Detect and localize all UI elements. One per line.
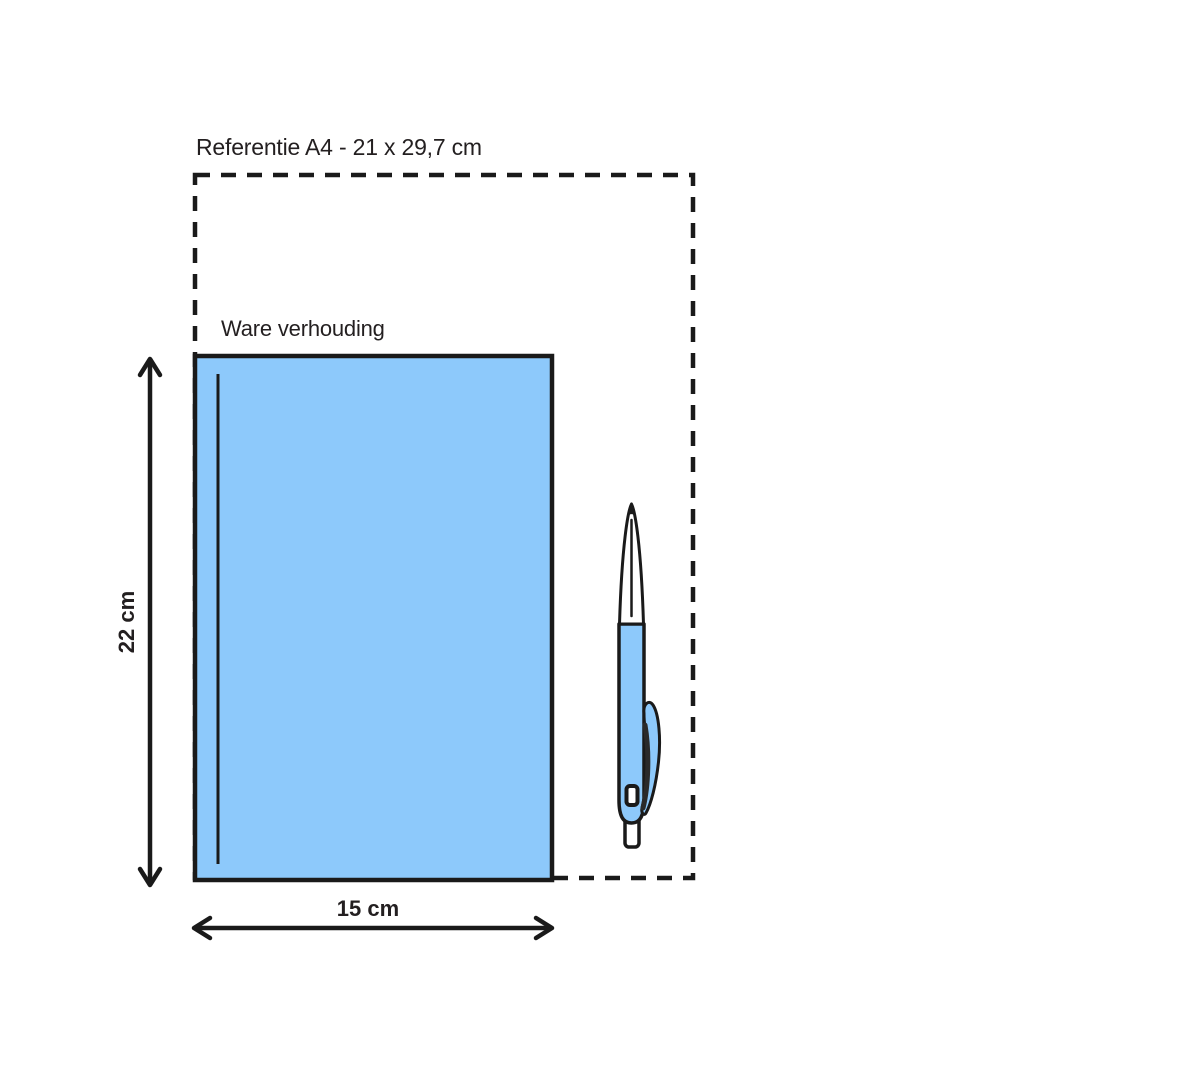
- size-comparison-diagram: Referentie A4 - 21 x 29,7 cm Ware verhou…: [0, 0, 1200, 1066]
- scale-note-label: Ware verhouding: [221, 316, 385, 342]
- pen-grip-window: [627, 786, 638, 805]
- pen-illustration: [600, 498, 664, 854]
- width-dimension-arrow: [186, 913, 562, 943]
- book-illustration: [191, 352, 557, 885]
- height-dimension-label: 22 cm: [114, 582, 140, 662]
- reference-size-label: Referentie A4 - 21 x 29,7 cm: [196, 134, 482, 161]
- book-cover-rect: [195, 356, 552, 880]
